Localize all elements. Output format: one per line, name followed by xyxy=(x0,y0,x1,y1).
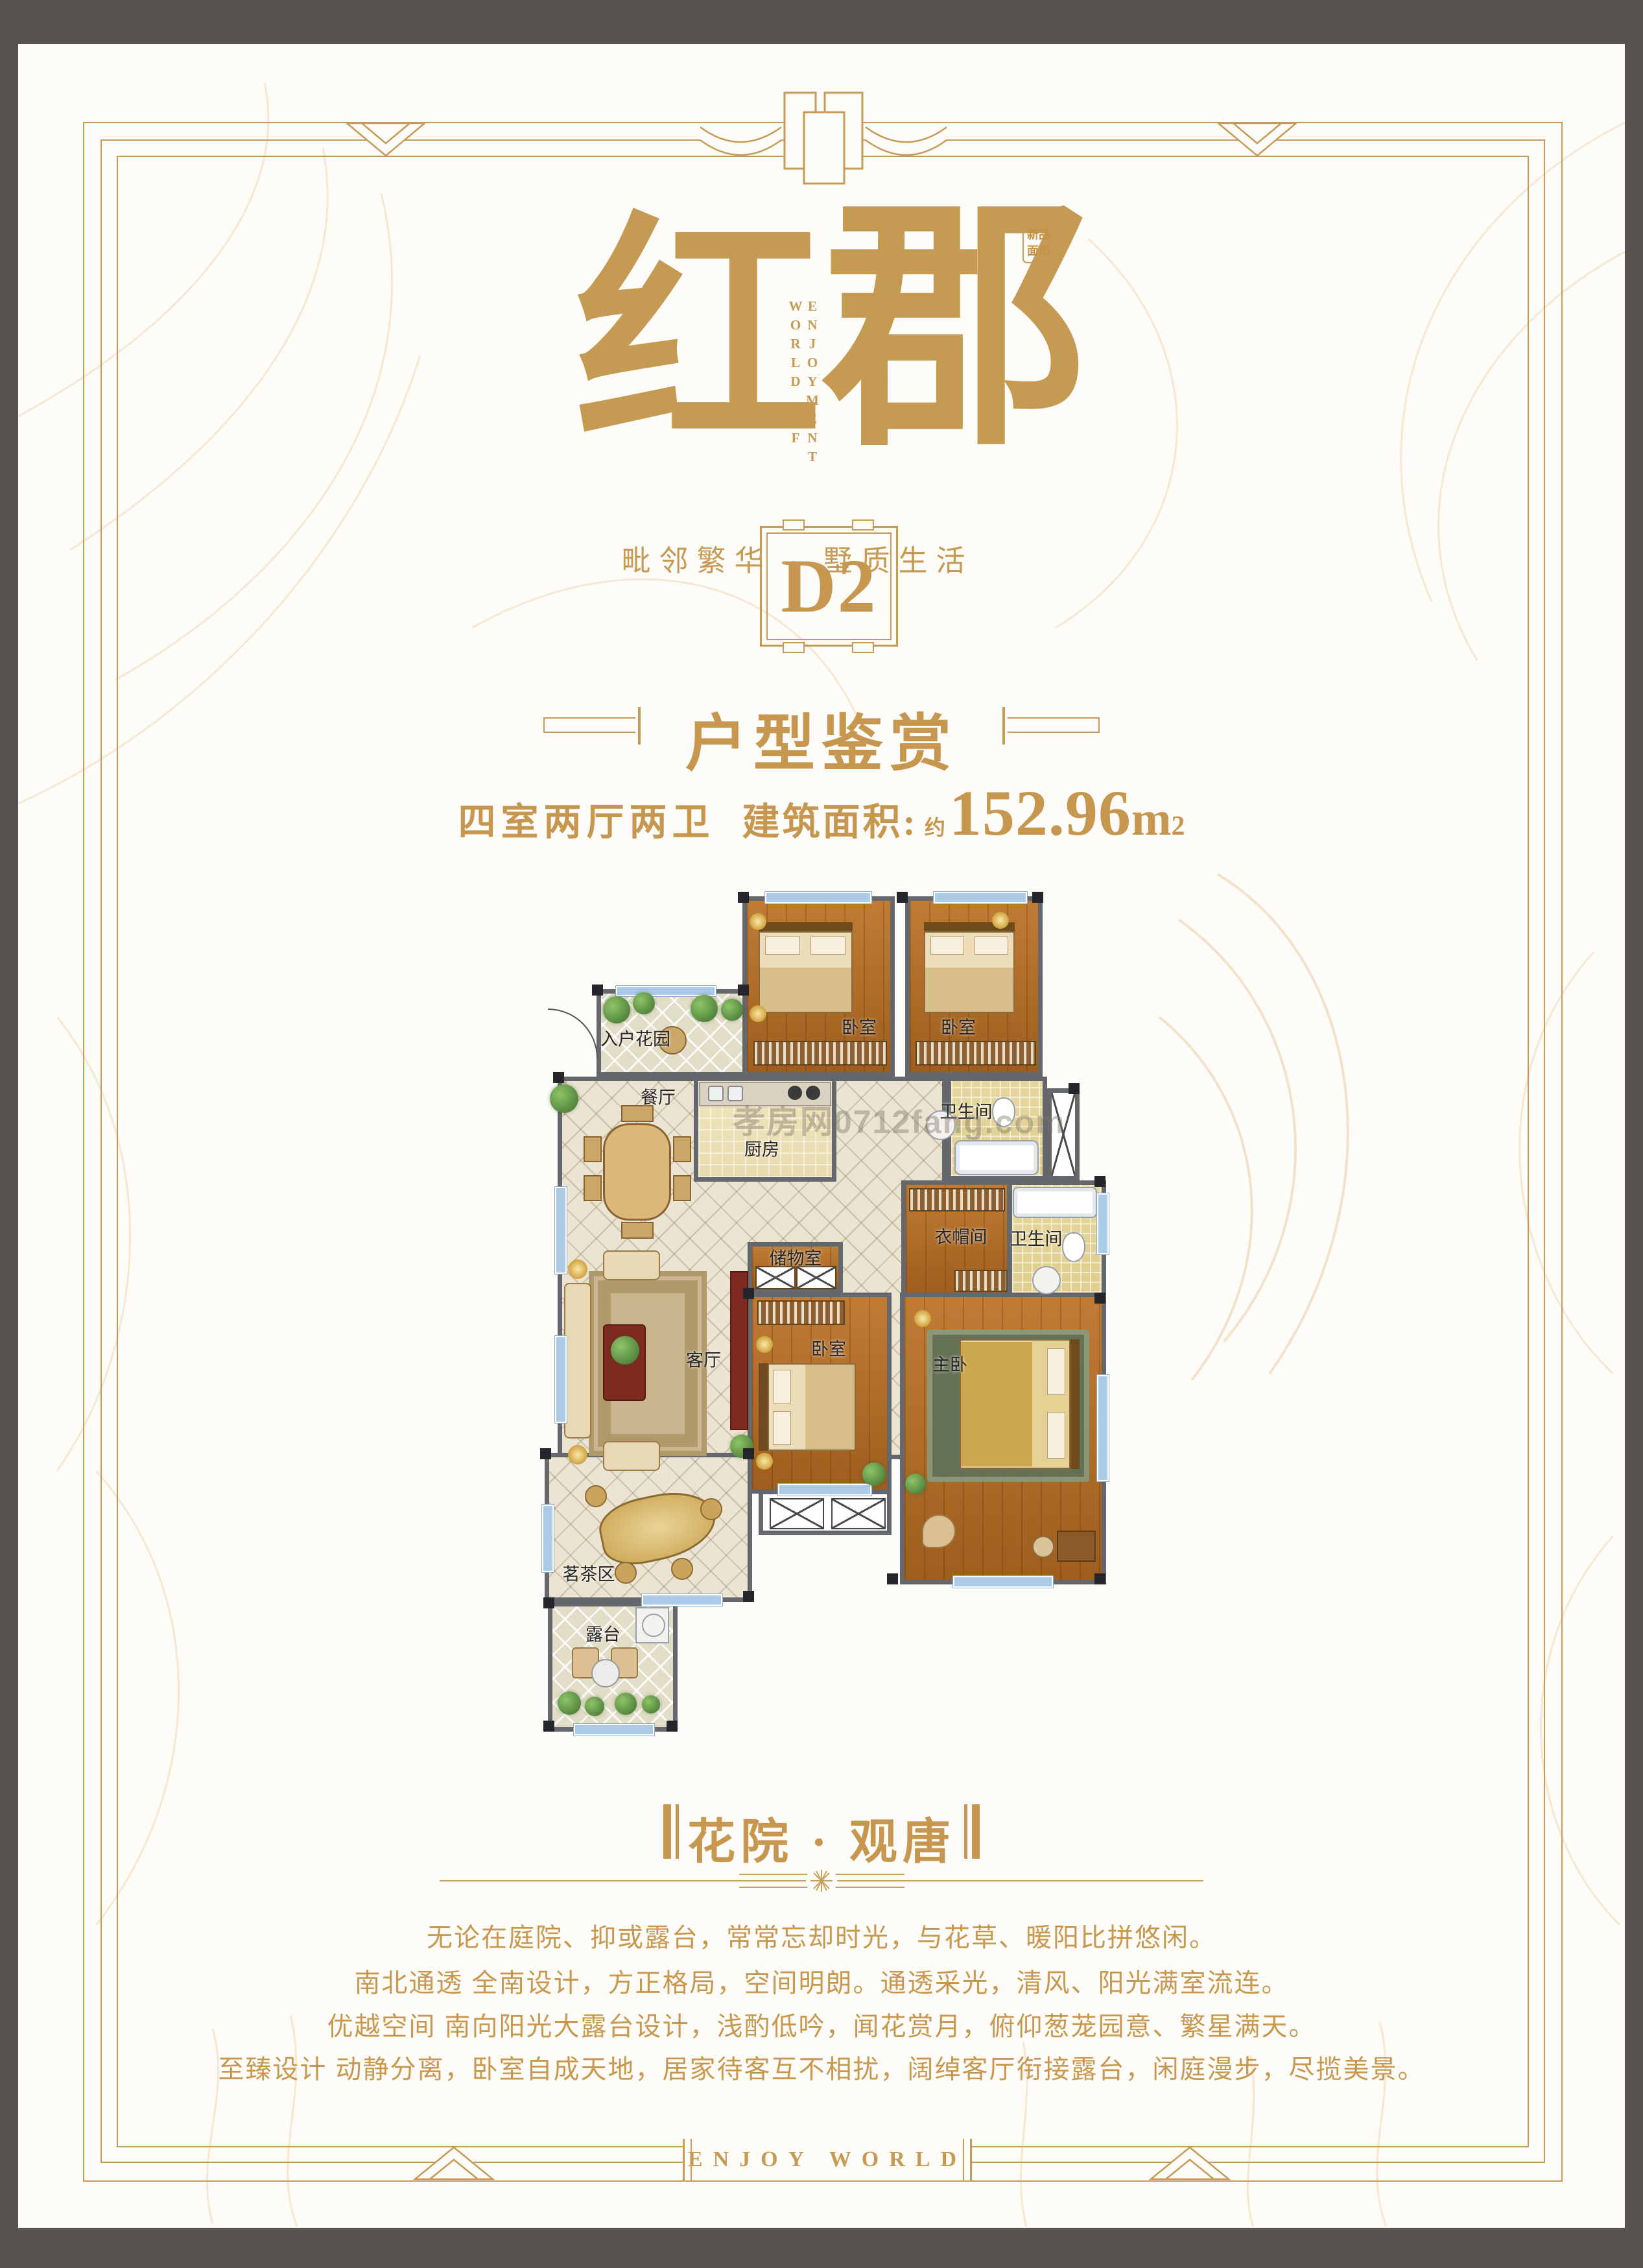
window xyxy=(1097,1375,1109,1481)
room-label-master-bedroom: 主卧 xyxy=(932,1351,967,1376)
room-label-bedroom-3: 卧室 xyxy=(811,1335,846,1361)
watermark: 孝房网0712fang.com xyxy=(733,1096,1065,1143)
badge-lug xyxy=(852,642,874,653)
section-title: 户型鉴赏 xyxy=(685,694,958,783)
window xyxy=(778,1484,871,1496)
tea-stool xyxy=(671,1558,693,1580)
room-label-living: 客厅 xyxy=(686,1346,721,1372)
slogan-title: 花院 · 观唐 xyxy=(687,1803,956,1872)
page: 红 郡 WORLD OF ENJOYMENT 新品面市 毗邻繁华 · 墅质生活 … xyxy=(0,0,1643,2268)
slogan-bar-left xyxy=(663,1804,680,1859)
title-rail-left xyxy=(543,707,657,748)
floorplan: 入户花园 卧室 卧室 厨房 餐厅 卫生间 衣帽间 卫生间 储物室 客厅 卧室 主… xyxy=(538,882,1148,1736)
title-rail-right xyxy=(986,707,1100,748)
window xyxy=(555,1187,567,1274)
window xyxy=(555,1336,567,1423)
badge-lug xyxy=(783,642,805,653)
room-label-cloakroom: 衣帽间 xyxy=(935,1223,987,1248)
logo-character-hong: 红 xyxy=(574,214,822,462)
paragraph-2: 南北通透 全南设计，方正格局，空间明朗。通透采光，清风、阳光满室流连。 xyxy=(354,1962,1288,1999)
unit-type-badge: D2 xyxy=(760,526,898,647)
window xyxy=(574,1724,654,1736)
room-label-terrace: 露台 xyxy=(585,1621,621,1646)
paragraph-4: 至臻设计 动静分离，卧室自成天地，居家待客互不相扰，阔绰客厅衔接露台，闲庭漫步，… xyxy=(218,2048,1424,2086)
sofa xyxy=(564,1283,591,1438)
dining-chair xyxy=(621,1222,654,1239)
dining-table xyxy=(603,1123,671,1221)
tea-stool xyxy=(615,1562,637,1584)
area-value: 152.96 xyxy=(949,777,1131,849)
bed xyxy=(924,922,1015,1013)
bed xyxy=(759,1363,856,1451)
room-label-bathroom-2: 卫生间 xyxy=(1010,1225,1063,1250)
enjoy-world-label: ENJOY WORLD xyxy=(683,2139,972,2180)
badge-lug xyxy=(852,519,874,531)
window xyxy=(953,1576,1053,1588)
area-superscript: 2 xyxy=(1172,811,1185,841)
room-count: 四室两厅两卫 xyxy=(458,801,715,843)
armchair xyxy=(922,1514,956,1548)
dining-chair xyxy=(584,1175,602,1201)
tea-stool xyxy=(700,1498,722,1520)
window xyxy=(1097,1193,1109,1254)
lower-shaft xyxy=(759,1490,892,1535)
window xyxy=(642,1594,722,1606)
bathtub xyxy=(954,1140,1039,1175)
window xyxy=(934,892,1027,903)
spec-line: 四室两厅两卫建筑面积:约152.96m2 xyxy=(458,776,1185,850)
star-icon xyxy=(810,1870,833,1892)
room-label-bedroom-1: 卧室 xyxy=(842,1014,877,1039)
paragraph-3: 优越空间 南向阳光大露台设计，浅酌低吟，闻花赏月，俯仰葱茏园意、繁星满天。 xyxy=(327,2005,1316,2043)
room-label-entry-garden: 入户花园 xyxy=(600,1025,670,1051)
slogan-bar-right xyxy=(963,1804,980,1859)
area-label: 建筑面积: xyxy=(742,801,918,843)
logo-english-vertical-text: WORLD OF ENJOYMENT xyxy=(787,298,821,493)
dining-chair xyxy=(673,1136,691,1162)
badge-lug xyxy=(783,519,805,531)
paragraph-1: 无论在庭院、抑或露台，常常忘却时光，与花草、暖阳比拼悠闲。 xyxy=(427,1916,1216,1954)
bed xyxy=(759,922,853,1013)
kitchen-sink xyxy=(708,1086,724,1101)
room-label-dining: 餐厅 xyxy=(641,1084,676,1109)
master-bed xyxy=(960,1339,1080,1469)
area-unit: m xyxy=(1131,793,1172,846)
armchair xyxy=(603,1441,660,1471)
room-label-storage: 储物室 xyxy=(770,1245,822,1270)
armchair xyxy=(603,1250,660,1280)
poster-background: 红 郡 WORLD OF ENJOYMENT 新品面市 毗邻繁华 · 墅质生活 … xyxy=(18,44,1625,2228)
window xyxy=(765,892,871,903)
desk-chair xyxy=(1032,1536,1054,1558)
dining-chair xyxy=(673,1175,691,1201)
window xyxy=(542,1505,554,1572)
room-label-tea-area: 茗茶区 xyxy=(563,1560,615,1586)
new-release-seal: 新品面市 xyxy=(1022,226,1055,263)
dining-chair xyxy=(584,1136,602,1162)
tea-stool xyxy=(585,1485,607,1507)
terrace-table xyxy=(591,1659,620,1688)
room-label-bedroom-2: 卧室 xyxy=(941,1014,976,1039)
unit-type-label: D2 xyxy=(781,542,877,630)
approx-label: 约 xyxy=(925,816,945,839)
desk xyxy=(1057,1531,1096,1562)
bathtub xyxy=(1013,1187,1097,1218)
